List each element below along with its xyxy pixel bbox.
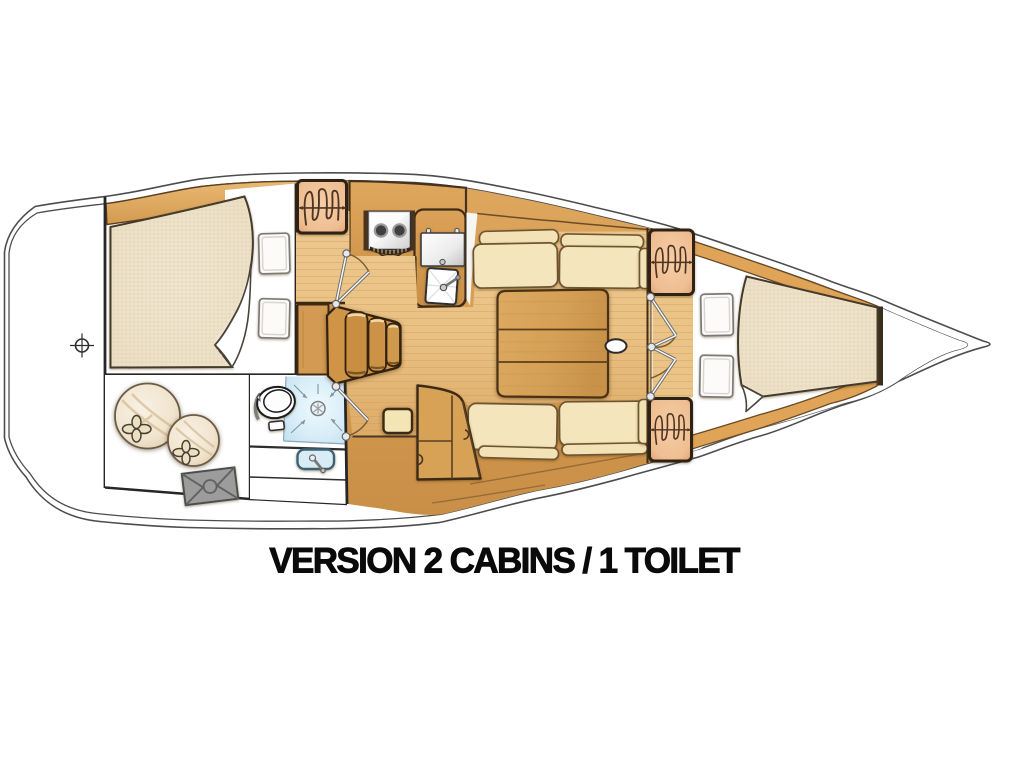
svg-text:VERSION 2 CABINS / 1 TOILET: VERSION 2 CABINS / 1 TOILET: [269, 542, 740, 581]
